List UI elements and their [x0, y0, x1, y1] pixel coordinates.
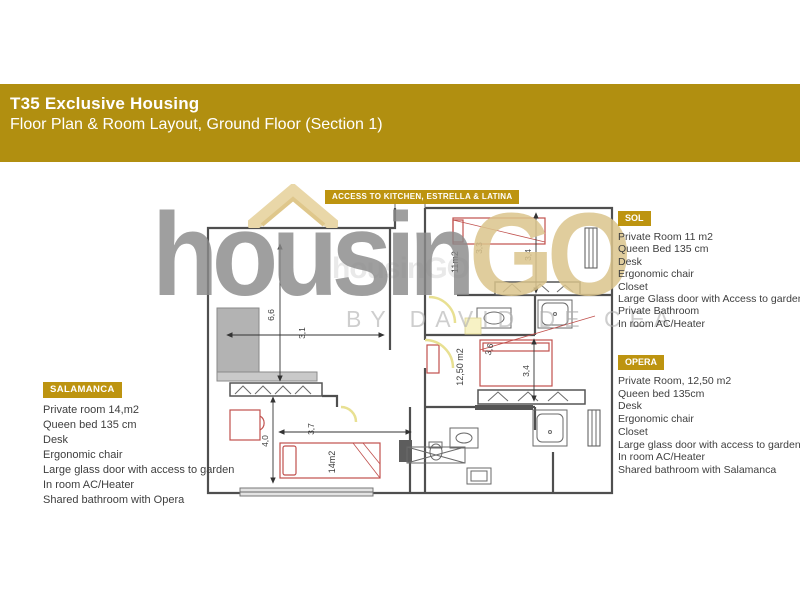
room-block-opera: OPERA Private Room, 12,50 m2 Queen bed 1…: [618, 355, 800, 477]
feature-line: Private Room 11 m2: [618, 231, 800, 243]
room-features-salamanca: Private room 14,m2 Queen bed 135 cm Desk…: [43, 403, 234, 508]
feature-line: Ergonomic chair: [43, 448, 234, 463]
radiator-sol: [585, 228, 597, 268]
feature-line: Closet: [618, 426, 800, 439]
room-block-sol: SOL Private Room 11 m2 Queen Bed 135 cm …: [618, 211, 800, 330]
room-features-sol: Private Room 11 m2 Queen Bed 135 cm Desk…: [618, 231, 800, 330]
desk-opera: [427, 345, 439, 373]
area-sol: 11m2: [450, 251, 460, 273]
feature-line: In room AC/Heater: [618, 451, 800, 464]
header-band: T35 Exclusive Housing Floor Plan & Room …: [0, 84, 800, 162]
wardrobe-sol: [495, 282, 580, 295]
dim-left-height: 6,6: [266, 309, 276, 321]
feature-line: In room AC/Heater: [618, 318, 800, 330]
dim-opera-height: 3,4: [521, 365, 531, 377]
feature-line: Desk: [618, 256, 800, 268]
dim-sol-height: 3,4: [523, 249, 533, 261]
feature-line: Ergonomic chair: [618, 413, 800, 426]
feature-line: Queen bed 135cm: [618, 388, 800, 401]
feature-line: Large glass door with access to garden,: [618, 439, 800, 452]
feature-line: Queen Bed 135 cm: [618, 243, 800, 255]
feature-line: Ergonomic chair: [618, 268, 800, 280]
desk-salamanca: [230, 410, 264, 440]
feature-line: Private Room, 12,50 m2: [618, 375, 800, 388]
dim-sol-width: 3,3: [474, 242, 484, 254]
floor-plan: 6,6 3,1 4,0 3,7 3,3 3,4 3,6 3,4 11m2 12,…: [195, 200, 615, 500]
feature-line: Shared bathroom with Salamanca: [618, 464, 800, 477]
area-opera: 12,50 m2: [455, 348, 465, 386]
bed-sol: [453, 218, 545, 244]
dim-left-width: 3,1: [297, 327, 307, 339]
feature-line: Large Glass door with Access to garden: [618, 293, 800, 305]
room-badge-salamanca: SALAMANCA: [43, 382, 122, 398]
access-banner: ACCESS TO KITCHEN, ESTRELLA & LATINA: [325, 190, 519, 204]
page-title: T35 Exclusive Housing: [10, 94, 199, 114]
feature-line: Desk: [43, 433, 234, 448]
room-block-salamanca: SALAMANCA Private room 14,m2 Queen bed 1…: [43, 382, 234, 508]
interior-walls: [322, 208, 612, 493]
feature-line: In room AC/Heater: [43, 478, 234, 493]
feature-line: Shared bathroom with Opera: [43, 493, 234, 508]
bathroom-sol: [429, 297, 572, 334]
feature-line: Desk: [618, 400, 800, 413]
feature-line: Closet: [618, 281, 800, 293]
dimension-labels: 6,6 3,1 4,0 3,7 3,3 3,4 3,6 3,4: [260, 242, 533, 447]
room-badge-sol: SOL: [618, 211, 651, 226]
dim-salamanca-width: 3,7: [306, 423, 316, 435]
dim-opera-width: 3,6: [483, 342, 496, 356]
area-salamanca: 14m2: [327, 451, 337, 474]
page-subtitle: Floor Plan & Room Layout, Ground Floor (…: [10, 116, 383, 134]
feature-line: Private Bathroom: [618, 305, 800, 317]
feature-line: Large glass door with access to garden: [43, 463, 234, 478]
feature-line: Private room 14,m2: [43, 403, 234, 418]
wardrobe-opera: [478, 390, 585, 404]
nightstand-salamanca: [399, 440, 412, 462]
dim-salamanca-height: 4,0: [260, 435, 270, 447]
room-features-opera: Private Room, 12,50 m2 Queen bed 135cm D…: [618, 375, 800, 477]
room-badge-opera: OPERA: [618, 355, 664, 370]
feature-line: Queen bed 135 cm: [43, 418, 234, 433]
window-salamanca: [240, 488, 373, 496]
slide: T35 Exclusive Housing Floor Plan & Room …: [0, 0, 800, 600]
area-labels: 11m2 12,50 m2 14m2: [327, 251, 465, 473]
wardrobe-salamanca: [230, 383, 322, 396]
